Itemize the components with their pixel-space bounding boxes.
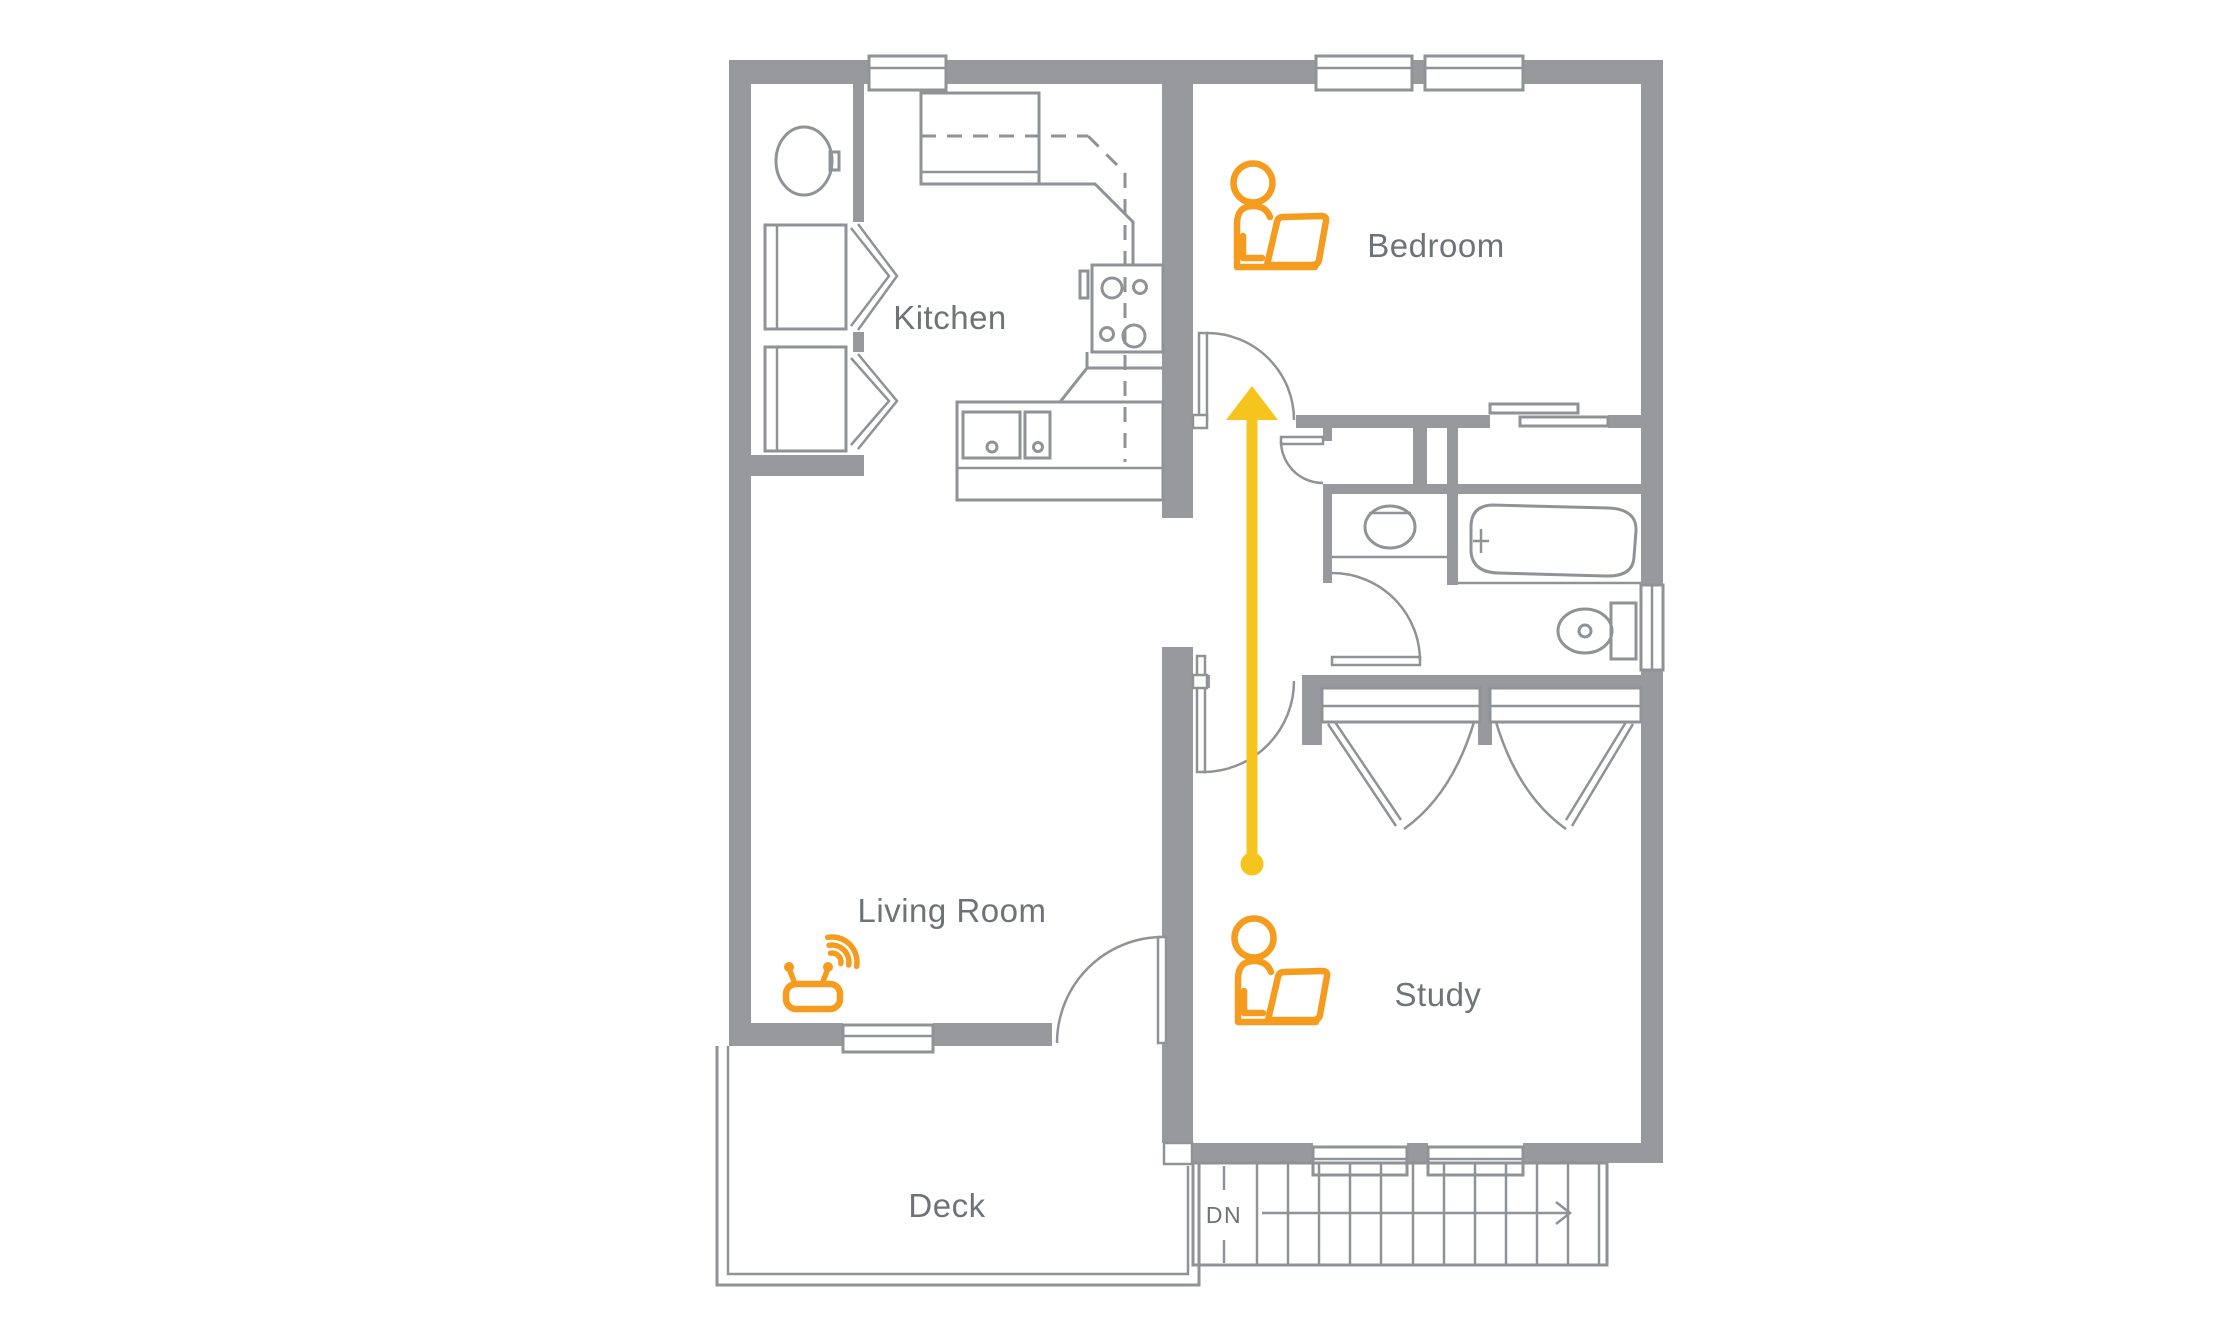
wall — [1162, 647, 1193, 1143]
bathroom-window — [1641, 585, 1663, 670]
study-window — [1313, 1147, 1407, 1175]
room-label-bedroom: Bedroom — [1367, 227, 1504, 264]
room-label-kitchen: Kitchen — [893, 299, 1007, 336]
wall — [853, 84, 864, 222]
wall — [853, 332, 864, 352]
wall — [1412, 60, 1425, 84]
wall — [1323, 494, 1332, 583]
stairs-dn-label: DN — [1206, 1202, 1242, 1228]
bathtub — [1458, 505, 1641, 583]
wall — [1323, 484, 1642, 494]
wall — [1608, 415, 1641, 428]
walls — [729, 60, 1663, 1163]
stairs-down-arrow — [1262, 1202, 1570, 1224]
study-closets — [1322, 688, 1641, 829]
wall — [1523, 1143, 1641, 1163]
wifi-router-icon — [784, 930, 864, 1009]
laundry-basin — [776, 127, 832, 195]
signal-path-arrow — [1226, 386, 1278, 876]
wall — [1302, 688, 1322, 745]
wall — [1447, 415, 1458, 485]
wall — [729, 60, 751, 1046]
person-laptop-icon-study — [1235, 919, 1328, 1023]
washer — [765, 225, 846, 329]
toilet — [1558, 603, 1636, 659]
wall — [933, 1023, 1052, 1046]
wall — [729, 1023, 843, 1046]
wall — [729, 455, 864, 476]
kitchen-fixtures — [765, 93, 1163, 500]
kitchen-sink — [957, 402, 1163, 500]
dryer — [765, 347, 846, 451]
wall — [1407, 1143, 1428, 1163]
person-laptop-icon-bedroom — [1234, 164, 1327, 268]
floor-plan-diagram: DN Kitchen Bedroom Living Room Study Dec… — [0, 0, 2226, 1339]
living-room-window — [843, 1025, 933, 1052]
wall — [1413, 428, 1427, 484]
wall — [1641, 60, 1663, 585]
room-label-living-room: Living Room — [858, 892, 1047, 929]
study-door — [1193, 656, 1294, 772]
room-label-deck: Deck — [908, 1187, 985, 1224]
wall — [1162, 60, 1193, 518]
bedroom-window — [1316, 56, 1412, 90]
bathroom-sink — [1332, 506, 1447, 557]
counter-edge — [957, 184, 1162, 402]
room-label-study: Study — [1395, 976, 1482, 1013]
wall — [1193, 1143, 1313, 1163]
kitchen-window — [869, 56, 946, 90]
wall — [1296, 415, 1490, 428]
bedroom-window — [1425, 56, 1523, 90]
wall — [1447, 484, 1458, 585]
wall — [1323, 428, 1332, 441]
basin-handle — [830, 152, 839, 170]
refrigerator — [921, 93, 1039, 184]
stairs: DN — [1193, 1163, 1607, 1265]
bedroom-closet-sliding-doors — [1490, 404, 1608, 426]
wall — [1302, 675, 1642, 688]
bathroom-door — [1332, 573, 1420, 665]
wall — [1641, 670, 1663, 1163]
deck-outline — [717, 1046, 1199, 1285]
bathroom-fixtures — [1332, 505, 1641, 659]
stove — [1080, 265, 1163, 352]
wall — [946, 60, 1316, 84]
hall-closet-door — [1281, 437, 1323, 483]
doors — [1057, 333, 1420, 1164]
